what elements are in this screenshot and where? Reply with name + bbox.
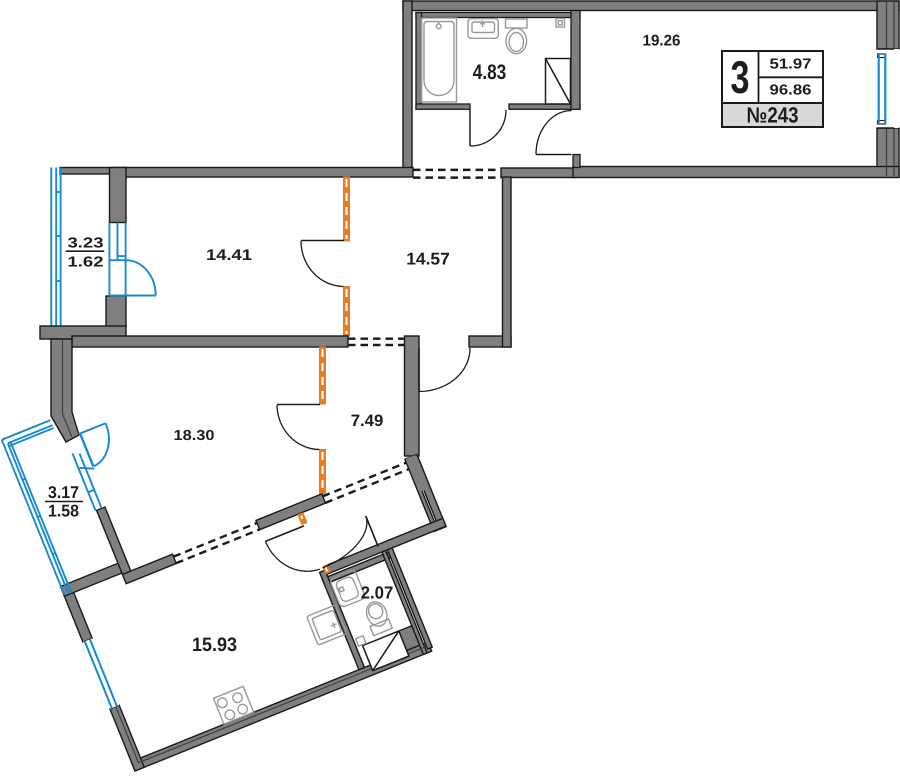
svg-text:14.41: 14.41	[206, 247, 252, 264]
svg-text:15.93: 15.93	[192, 634, 237, 656]
svg-text:3.17: 3.17	[48, 483, 79, 502]
svg-text:1.58: 1.58	[48, 502, 79, 521]
svg-text:4.83: 4.83	[473, 61, 507, 84]
svg-text:№243: №243	[747, 103, 799, 128]
svg-text:51.97: 51.97	[770, 57, 812, 73]
svg-text:1.62: 1.62	[68, 255, 104, 271]
svg-text:96.86: 96.86	[770, 83, 812, 99]
svg-text:3: 3	[731, 51, 750, 103]
svg-text:7.49: 7.49	[351, 412, 384, 430]
svg-text:2.07: 2.07	[361, 583, 394, 603]
svg-text:18.30: 18.30	[174, 428, 215, 444]
svg-text:3.23: 3.23	[68, 236, 104, 252]
svg-text:19.26: 19.26	[643, 33, 681, 50]
svg-text:14.57: 14.57	[406, 250, 450, 269]
